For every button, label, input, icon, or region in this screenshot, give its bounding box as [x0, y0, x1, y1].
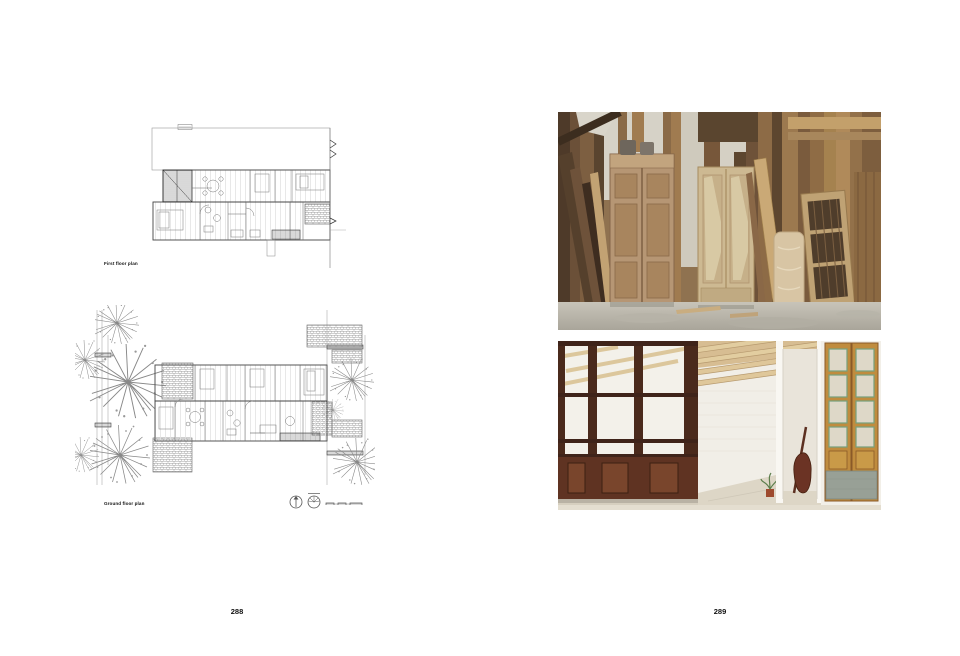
ochre-glazed-door [821, 341, 881, 505]
floor-stripes-upper [192, 170, 330, 202]
stair-block [163, 170, 192, 202]
first-floor-plan-figure [100, 118, 350, 273]
left-page: First floor plan [0, 0, 480, 656]
first-floor-plan-drawing [100, 118, 350, 273]
slatted-window-frame [801, 190, 855, 309]
photo-reclaimed-doors-warehouse [558, 112, 881, 330]
first-floor-plan-caption: First floor plan [104, 261, 138, 266]
stone-weight [640, 142, 654, 155]
warehouse-photo-drawing [558, 112, 881, 330]
right-page-number: 289 [698, 607, 742, 616]
orientation-scale-drawing [288, 487, 366, 517]
stone-weight [620, 140, 636, 155]
lower-stairs [272, 230, 300, 239]
site-boundary [330, 128, 346, 268]
partition-shadow [558, 499, 698, 503]
ground-floor-plan-figure [75, 305, 375, 490]
ground-floor-plan-caption: Ground floor plan [104, 501, 145, 506]
ground-floor-plan-drawing [75, 305, 375, 490]
entry-paving [305, 204, 330, 224]
north-arrow-icon [290, 496, 302, 508]
book-spread: First floor plan [0, 0, 960, 656]
ground-stairs [280, 433, 320, 441]
roof-terrace-outline [152, 125, 330, 171]
mahogany-glazed-partition [558, 341, 698, 510]
left-page-number: 288 [215, 607, 259, 616]
stone-base [826, 471, 877, 499]
concrete-floor [558, 302, 881, 330]
pale-glazed-door [698, 167, 754, 309]
wall-niche [776, 341, 825, 503]
photo-interior-glazed-partition [558, 341, 881, 510]
right-page: 289 [480, 0, 960, 656]
scale-bar [326, 503, 362, 505]
tan-double-door [610, 140, 674, 306]
exterior-step [267, 240, 275, 256]
orientation-and-scale [288, 487, 366, 517]
foreground-floor [558, 505, 881, 510]
wrapped-bundle [774, 232, 804, 310]
sun-dial-icon [308, 494, 320, 509]
interior-photo-drawing [558, 341, 881, 510]
